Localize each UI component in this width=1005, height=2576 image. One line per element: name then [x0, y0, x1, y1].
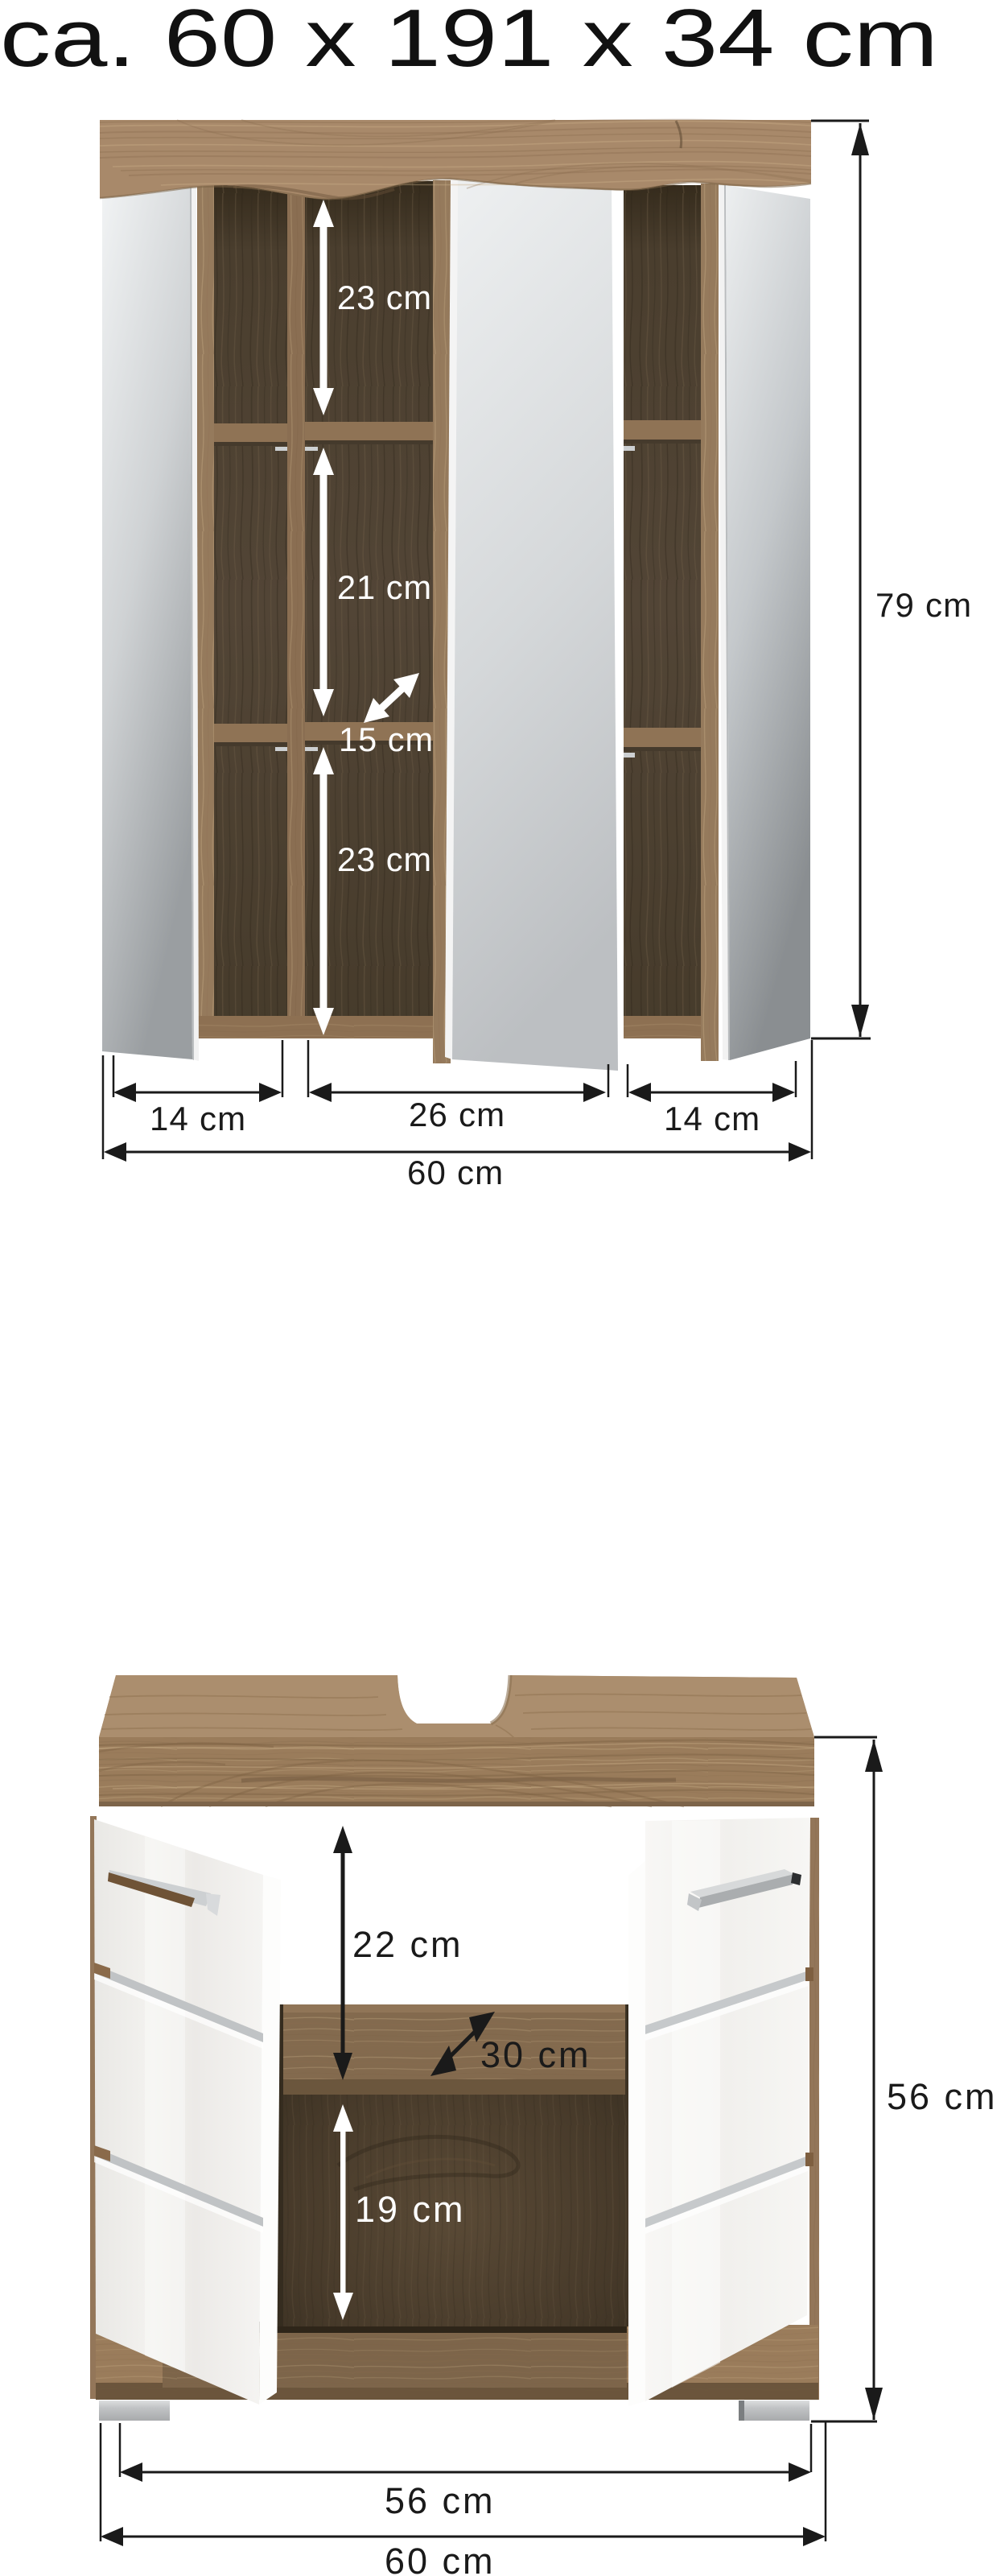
- svg-text:56 cm: 56 cm: [385, 2480, 496, 2521]
- svg-text:21 cm: 21 cm: [337, 568, 432, 606]
- svg-text:15 cm: 15 cm: [339, 720, 434, 758]
- svg-text:30 cm: 30 cm: [480, 2034, 591, 2075]
- svg-text:60 cm: 60 cm: [385, 2541, 496, 2576]
- svg-text:22 cm: 22 cm: [352, 1924, 463, 1965]
- svg-text:19 cm: 19 cm: [355, 2189, 466, 2230]
- svg-text:23 cm: 23 cm: [337, 279, 432, 316]
- svg-text:26 cm: 26 cm: [409, 1096, 505, 1133]
- svg-text:14 cm: 14 cm: [664, 1100, 760, 1137]
- svg-text:ca. 60 x 191 x 34 cm: ca. 60 x 191 x 34 cm: [0, 0, 938, 84]
- svg-text:56 cm: 56 cm: [887, 2076, 998, 2117]
- svg-text:14 cm: 14 cm: [150, 1100, 246, 1137]
- svg-text:23 cm: 23 cm: [337, 840, 432, 878]
- svg-text:60 cm: 60 cm: [407, 1154, 504, 1191]
- svg-text:79 cm: 79 cm: [875, 586, 972, 624]
